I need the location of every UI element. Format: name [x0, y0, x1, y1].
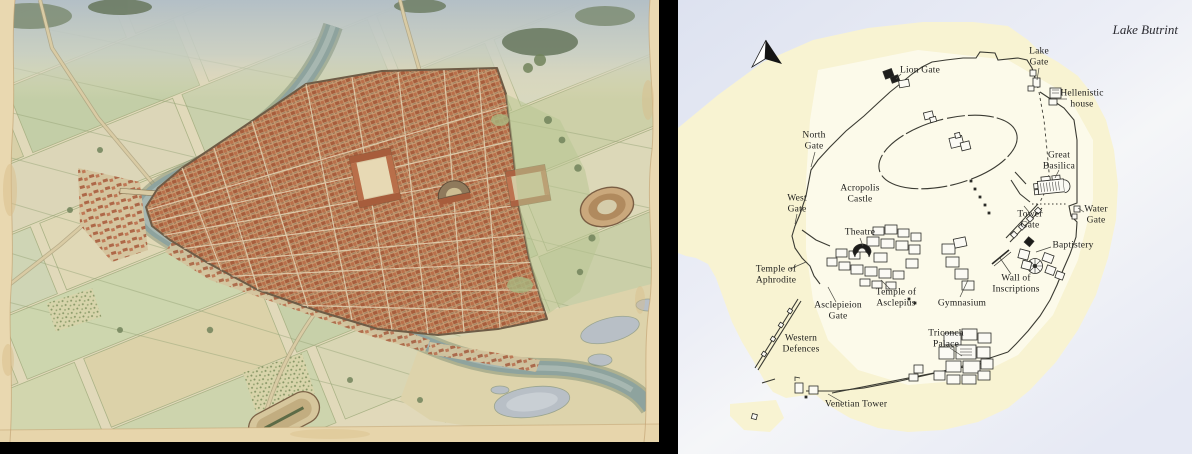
map-label-acropolis-castle: Acropolis Castle [840, 183, 879, 204]
map-label-hellenistic-house: Hellenistic house [1060, 88, 1103, 109]
map-label-western-defences: Western Defences [783, 333, 820, 354]
map-label-lion-gate: Lion Gate [900, 66, 940, 77]
map-label-west-gate: West Gate [787, 193, 807, 214]
map-label-water-gate: Water Gate [1084, 204, 1107, 225]
map-label-lake-gate: Lake Gate [1029, 46, 1049, 67]
map-label-theatre: Theatre [845, 228, 875, 239]
map-label-great-basilica: Great Basilica [1043, 150, 1075, 171]
map-label-baptistery: Baptistery [1052, 241, 1093, 252]
map-title-lake-butrint: Lake Butrint [1113, 22, 1178, 38]
map-label-temple-of-asclepius: Temple of Asclepius [876, 287, 916, 308]
map-label-wall-of-inscriptions: Wall of Inscriptions [992, 273, 1039, 294]
map-label-venetian-tower: Venetian Tower [825, 400, 887, 411]
map-label-asclepieion-gate: Asclepieion Gate [814, 300, 862, 321]
map-label-triconch-palace: Triconch Palace [928, 328, 964, 349]
map-label-tower-gate: Tower Gate [1017, 209, 1042, 230]
map-label-temple-of-aphrodite: Temple of Aphrodite [756, 264, 796, 285]
screenshot-stage: Lake Butrint Lake Gate Lion Gate Helleni… [0, 0, 1192, 454]
butrint-map: Lake Butrint Lake Gate Lion Gate Helleni… [678, 0, 1192, 454]
roman-city-painting [0, 0, 659, 442]
roman-city-painting-svg [0, 0, 659, 442]
map-label-gymnasium: Gymnasium [938, 299, 986, 310]
map-label-north-gate: North Gate [802, 130, 825, 151]
